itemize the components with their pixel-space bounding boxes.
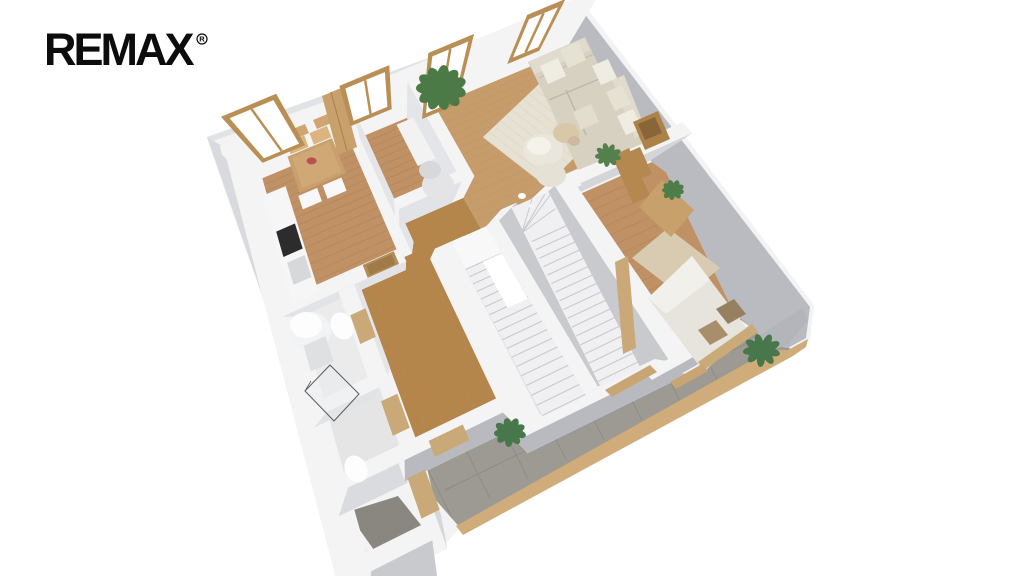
svg-text:R: R <box>199 35 205 44</box>
